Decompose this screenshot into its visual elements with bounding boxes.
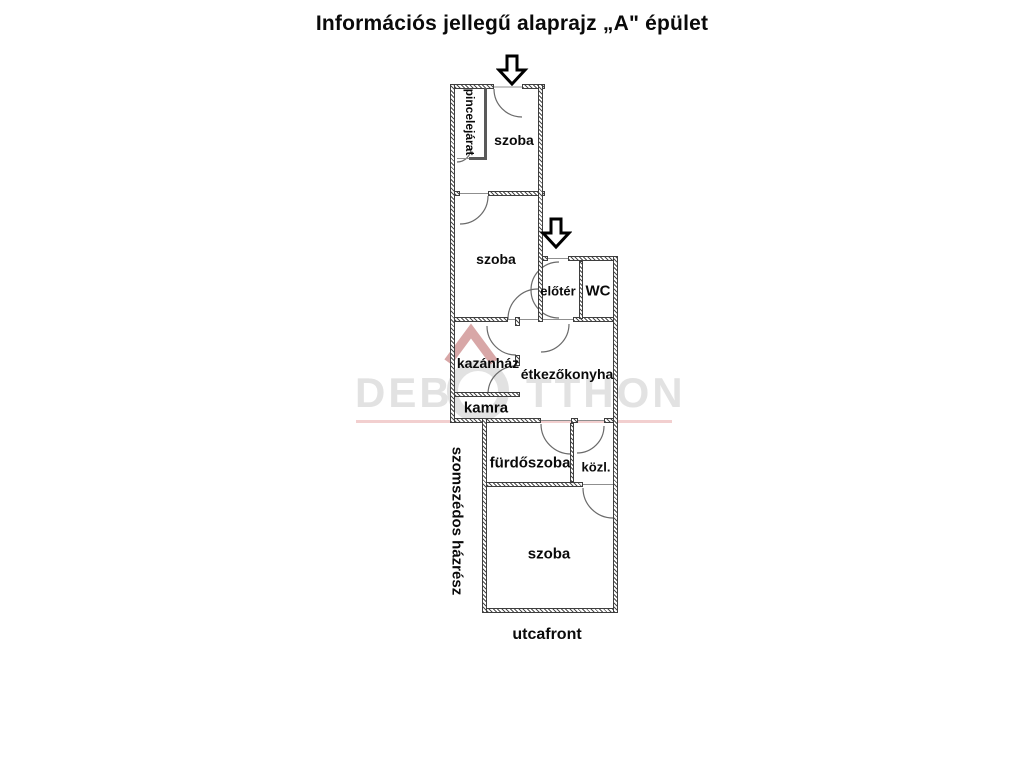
- room-label-szoba-top: szoba: [494, 132, 534, 148]
- wall-segment: [482, 418, 487, 613]
- wall-segment: [570, 423, 574, 482]
- wall-segment: [613, 256, 618, 613]
- wall-segment: [450, 317, 508, 322]
- wall-segment: [579, 261, 583, 319]
- wall-segment: [484, 88, 487, 160]
- wall-segment: [482, 608, 618, 613]
- watermark-roof-icon: [0, 0, 1024, 776]
- wall-segment: [568, 256, 618, 261]
- page-title: Információs jellegű alaprajz „A" épület: [316, 12, 708, 36]
- room-label-kazanhaz: kazánház: [457, 355, 519, 371]
- wall-segment: [482, 482, 583, 487]
- wall-segment: [450, 392, 520, 397]
- annotation-neighboring-house: szomszédos házrész: [449, 447, 466, 595]
- room-label-szoba-bottom: szoba: [528, 546, 571, 563]
- wall-segment: [450, 418, 541, 423]
- watermark-text-left: DEB: [355, 372, 453, 414]
- annotation-street-front: utcafront: [512, 626, 581, 644]
- door-arcs: [0, 0, 1024, 776]
- room-label-eloter: előtér: [540, 284, 575, 299]
- floorplan-canvas: Információs jellegű alaprajz „A" épület …: [0, 0, 1024, 776]
- room-label-kozlekedo: közl.: [582, 460, 611, 475]
- room-label-szoba-middle: szoba: [476, 251, 516, 267]
- entrance-arrow-icon: [496, 54, 530, 86]
- wall-segment: [515, 317, 520, 326]
- wall-segment: [488, 191, 545, 196]
- wall-segment: [450, 84, 455, 423]
- room-label-kamra: kamra: [464, 400, 508, 417]
- room-label-etkezokonyha: étkezőkonyha: [521, 366, 614, 382]
- room-label-wc: WC: [586, 283, 611, 300]
- room-label-furdoszoba: fürdőszoba: [490, 455, 571, 472]
- entrance-arrow-icon: [540, 216, 572, 250]
- room-label-pincelejarat: pincelejárat: [463, 89, 477, 156]
